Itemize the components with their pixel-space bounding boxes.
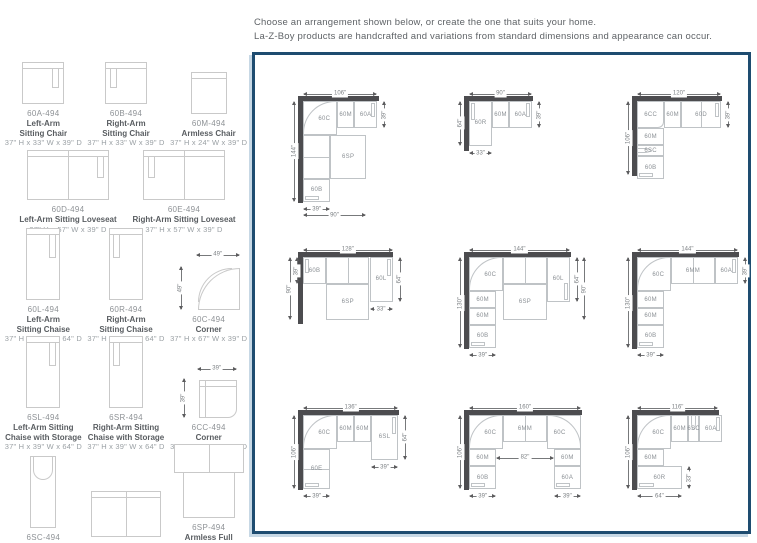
dimension-arrow: 39" [371, 464, 398, 471]
loveseat-arm-l-icon [143, 150, 225, 200]
catalog-item-60A-494: 60A-494Left-ArmSitting Chair37" H x 33" … [2, 58, 85, 148]
piece-label: 60M [555, 450, 580, 465]
dimension-label: 39" [742, 264, 749, 277]
dimension-arrow: 33" [686, 466, 693, 489]
catalog-item-6MM-494: 6MM-494Armless Loveseat37" H x 62" W x 3… [85, 459, 168, 543]
dimension-label: 90" [581, 282, 588, 295]
dimension-arrow: 64" [457, 101, 464, 146]
piece-60C: 60C [469, 257, 503, 291]
dimension-arrow: 39" [725, 101, 732, 128]
arrow-start-icon [458, 101, 462, 105]
piece-60A: 60A [715, 257, 738, 284]
piece-name: Sitting Chair [102, 129, 150, 139]
piece-label: 60M [638, 292, 663, 307]
piece-60M: 60M [637, 128, 664, 145]
chaise-arm-l-icon [109, 336, 143, 408]
arrow-end-icon [743, 280, 747, 284]
dimension-arrow: 144" [469, 247, 570, 254]
piece-icon-area [105, 58, 147, 104]
dimension-arrow: 39" [554, 493, 581, 500]
dimension-label: 39" [310, 493, 323, 500]
arrow-start-icon [371, 465, 375, 469]
dimension-arrow: 90" [287, 257, 294, 320]
arrow-end-icon [182, 414, 186, 418]
piece-name: Right-Arm Sitting [93, 423, 159, 433]
piece-label: 60B [470, 326, 495, 347]
dimension-label: 144" [679, 247, 695, 254]
piece-name: Sitting Chair [20, 129, 68, 139]
piece-name: Armless Full [185, 533, 233, 543]
arrow-start-icon [469, 406, 473, 410]
arrow-end-icon [362, 213, 366, 217]
arrow-start-icon [687, 466, 691, 470]
piece-label: 60B [304, 258, 325, 283]
arrow-start-icon [398, 257, 402, 261]
piece-6CC: 6CC [637, 101, 664, 128]
catalog-item-60B-494: 60B-494Right-ArmSitting Chair37" H x 33"… [85, 58, 168, 148]
piece-60M: 60M [637, 291, 664, 308]
piece-label: 60C [470, 258, 502, 290]
arrow-end-icon [660, 353, 664, 357]
piece-icon-area: 49"49" [178, 234, 240, 310]
catalog-item-60C-494: 49"49"60C-494Corner37" H x 67" W x 39" D [167, 234, 250, 344]
intro-text: Choose an arrangement shown below, or cr… [254, 16, 712, 43]
dimension-arrow: 136" [303, 405, 398, 412]
loveseat-armless-icon [91, 491, 161, 537]
dimension-arrow: 64" [574, 257, 581, 302]
arrow-start-icon [382, 101, 386, 105]
arrow-end-icon [577, 406, 581, 410]
dimension-arrow: 82" [496, 455, 553, 462]
arrow-start-icon [469, 92, 473, 96]
piece-label: 6SC [689, 416, 698, 441]
piece-60L: 60L [547, 257, 570, 302]
arrow-start-icon [637, 248, 641, 252]
piece-label: 6SC [638, 146, 663, 155]
piece-label: 60D [682, 102, 720, 127]
dimension-label: 64" [653, 493, 666, 500]
catalog-item-60L-494: 60L-494Left-ArmSitting Chaise37" H x 33"… [2, 224, 85, 344]
arrow-end-icon [292, 485, 296, 489]
arrow-start-icon [303, 92, 307, 96]
arrow-start-icon [726, 101, 730, 105]
dimension-label: 33" [686, 471, 693, 484]
piece-60M: 60M [554, 449, 581, 466]
arrow-start-icon [637, 353, 641, 357]
dimension-arrow: 39" [469, 493, 496, 500]
arrow-end-icon [233, 367, 237, 371]
chaise-arm-r-icon [26, 336, 60, 408]
arrow-end-icon [382, 124, 386, 128]
arrow-end-icon [458, 485, 462, 489]
arrow-start-icon [303, 213, 307, 217]
piece-label: 60M [638, 129, 663, 144]
arrow-start-icon [303, 207, 307, 211]
arrow-end-icon [389, 307, 393, 311]
dimension-label: 39" [378, 464, 391, 471]
dimension-label: 39" [294, 264, 301, 277]
dimension-label: 120" [671, 91, 687, 98]
piece-icon-area [26, 332, 60, 408]
dimension-arrow: 49" [196, 252, 240, 259]
arrow-end-icon [687, 485, 691, 489]
piece-label: 60M [638, 450, 663, 465]
piece-icon-area [27, 146, 109, 200]
dimension-label: 160" [517, 405, 533, 412]
model-number: 6SR-494 [109, 413, 143, 423]
model-number: 60D-494 [52, 205, 85, 215]
div-v-mark [348, 258, 349, 283]
model-number: 60C-494 [192, 315, 225, 325]
piece-unlabeled [303, 135, 330, 178]
piece-unlabeled [326, 257, 369, 284]
dimension-arrow: 39" [381, 101, 388, 128]
piece-60M: 60M [671, 415, 688, 442]
piece-60C: 60C [303, 415, 337, 449]
corner-arc-icon [198, 268, 240, 310]
catalog-row: 60A-494Left-ArmSitting Chair37" H x 33" … [0, 58, 252, 148]
model-number: 60L-494 [28, 305, 59, 315]
piece-60M: 60M [664, 101, 681, 128]
dimension-label: 144" [511, 247, 527, 254]
dimension-label: 136" [343, 405, 359, 412]
dimension-label: 39" [536, 108, 543, 121]
arrow-end-icon [295, 280, 299, 284]
arrow-end-icon [326, 207, 330, 211]
catalog-item-60E-494: 60E-494Right-Arm Sitting Loveseat37" H x… [126, 146, 242, 234]
piece-60R: 60R [469, 101, 492, 146]
piece-label: 60E [304, 450, 329, 488]
piece-label: 60C [304, 102, 336, 134]
arrow-end-icon [577, 494, 581, 498]
dimension-label: 39" [476, 352, 489, 359]
chaise-arm-r-icon [26, 228, 60, 300]
arrow-end-icon [398, 298, 402, 302]
dimension-label: 130" [625, 294, 632, 310]
arrow-start-icon [575, 257, 579, 261]
dimension-label: 106" [332, 91, 348, 98]
piece-label: 6MM [672, 258, 713, 283]
piece-icon-area [109, 224, 143, 300]
catalog-item-6SL-494: 6SL-494Left-Arm SittingChaise with Stora… [2, 332, 85, 452]
arrow-start-icon [469, 494, 473, 498]
catalog-row: 60D-494Left-Arm Sitting Loveseat37" H x … [0, 146, 252, 234]
sleeper-icon [174, 444, 244, 518]
piece-60C: 60C [637, 415, 671, 449]
dimension-label: 90" [494, 91, 507, 98]
piece-60D: 60D [681, 101, 721, 128]
catalog-item-6SC-494: 6SC-494Storage Console25.5" H x 10" W x … [2, 450, 85, 543]
arrow-start-icon [197, 367, 201, 371]
model-number: 60M-494 [192, 119, 226, 129]
dimension-label: 106" [625, 130, 632, 146]
dimension-arrow: 120" [637, 91, 721, 98]
piece-label: 60M [665, 102, 680, 127]
dimension-arrow: 39" [742, 257, 749, 284]
catalog-sidebar: 60A-494Left-ArmSitting Chair37" H x 33" … [0, 0, 252, 543]
arrow-end-icon [626, 485, 630, 489]
dimension-arrow: 33" [469, 150, 492, 157]
arrow-end-icon [566, 248, 570, 252]
arrow-end-icon [678, 494, 682, 498]
arrow-start-icon [469, 151, 473, 155]
piece-label: 60A [510, 102, 531, 127]
dimension-arrow: 106" [457, 415, 464, 489]
piece-60M: 60M [492, 101, 509, 128]
loveseat-arm-r-icon [27, 150, 109, 200]
arrow-start-icon [626, 257, 630, 261]
dimension-label: 116" [670, 405, 686, 412]
console-icon [30, 456, 56, 528]
piece-60A: 60A [354, 101, 377, 128]
arrow-end-icon [726, 124, 730, 128]
piece-label: 60B [638, 157, 663, 178]
model-number: 60B-494 [110, 109, 142, 119]
piece-label: 60B [470, 467, 495, 488]
dimension-arrow: 106" [303, 91, 377, 98]
arrow-start-icon [458, 415, 462, 419]
model-number: 6SP-494 [192, 523, 225, 533]
dimension-arrow: 49" [178, 266, 185, 310]
dimension-arrow: 106" [625, 101, 632, 175]
dimension-label: 64" [402, 431, 409, 444]
arrow-start-icon [554, 494, 558, 498]
piece-60B: 60B [469, 466, 496, 489]
catalog-item-6CC-494: 39"39"6CC-494Corner37" H x 53" W x 39" D [167, 342, 250, 452]
piece-name: Left-Arm Sitting [13, 423, 73, 433]
piece-label: 60C [304, 416, 336, 448]
piece-60A: 60A [699, 415, 722, 442]
dimension-label: 39" [476, 493, 489, 500]
piece-icon-area [91, 459, 161, 537]
arrow-end-icon [537, 124, 541, 128]
dimension-arrow: 33" [370, 306, 393, 313]
intro-line-2: La-Z-Boy products are handcrafted and va… [254, 30, 712, 44]
dimension-label: 39" [644, 352, 657, 359]
arrow-start-icon [303, 406, 307, 410]
piece-name: Armless Chair [182, 129, 236, 139]
catalog-item-60D-494: 60D-494Left-Arm Sitting Loveseat37" H x … [10, 146, 126, 234]
catalog-row: 60L-494Left-ArmSitting Chaise37" H x 33"… [0, 224, 252, 344]
piece-60B: 60B [469, 325, 496, 348]
model-number: 6CC-494 [192, 423, 226, 433]
arrow-start-icon [182, 378, 186, 382]
arrow-end-icon [326, 494, 330, 498]
catalog-item-60M-494: 60M-494Armless Chair37" H x 24" W x 39" … [167, 68, 250, 148]
model-number: 60R-494 [110, 305, 143, 315]
corner-icon-wrap: 39"39" [181, 366, 237, 418]
arrow-start-icon [292, 415, 296, 419]
div-v-mark [525, 258, 526, 283]
piece-label: 60M [470, 450, 495, 465]
chaise-arm-l-icon [109, 228, 143, 300]
piece-label: 60C [638, 258, 670, 290]
piece-60B: 60B [303, 179, 330, 202]
dimension-arrow: 90" [581, 257, 588, 320]
dimension-label: 64" [457, 117, 464, 130]
arrow-start-icon [626, 415, 630, 419]
piece-6SP: 6SP [326, 284, 369, 320]
piece-60M: 60M [469, 308, 496, 325]
piece-60M: 60M [469, 449, 496, 466]
dimension-label: 39" [210, 366, 223, 373]
dimension-arrow: 39" [197, 366, 237, 373]
catalog-item-6SR-494: 6SR-494Right-Arm SittingChaise with Stor… [85, 332, 168, 452]
catalog-row: 6SL-494Left-Arm SittingChaise with Stora… [0, 332, 252, 452]
piece-icon-area [191, 68, 227, 114]
arrow-end-icon [389, 248, 393, 252]
dimension-label: 130" [457, 294, 464, 310]
piece-label: 60M [470, 292, 495, 307]
dimension-label: 33" [375, 306, 388, 313]
piece-60A: 60A [554, 466, 581, 489]
piece-60M: 60M [337, 101, 354, 128]
arrow-start-icon [743, 257, 747, 261]
piece-label: 60M [638, 309, 663, 324]
dimension-label: 90" [328, 212, 341, 219]
arrow-end-icon [626, 344, 630, 348]
model-number: 6SC-494 [26, 533, 60, 543]
piece-6SP: 6SP [330, 135, 366, 178]
piece-label: 6SL [372, 416, 397, 459]
dimension-arrow: 64" [402, 415, 409, 460]
arrow-start-icon [292, 101, 296, 105]
dimension-label: 49" [178, 281, 185, 294]
arrow-start-icon [196, 253, 200, 257]
piece-60L: 60L [370, 257, 393, 302]
piece-label: 60A [716, 258, 737, 283]
dimension-label: 106" [457, 444, 464, 460]
dimension-label: 64" [574, 273, 581, 286]
arrow-start-icon [403, 415, 407, 419]
model-number: 60E-494 [168, 205, 200, 215]
piece-icon-area [26, 224, 60, 300]
arrow-end-icon [734, 248, 738, 252]
dimension-arrow: 64" [397, 257, 404, 302]
arrow-start-icon [469, 248, 473, 252]
dimension-arrow: 130" [625, 257, 632, 348]
dimension-arrow: 39" [637, 352, 664, 359]
arrow-end-icon [714, 406, 718, 410]
piece-60M: 60M [469, 291, 496, 308]
piece-label: 60R [638, 467, 681, 488]
piece-name: Left-Arm [27, 315, 60, 325]
model-number: 60A-494 [27, 109, 59, 119]
arrow-start-icon [288, 257, 292, 261]
page: 60A-494Left-ArmSitting Chair37" H x 33" … [0, 0, 757, 543]
arrow-start-icon [179, 266, 183, 270]
arrow-start-icon [626, 101, 630, 105]
div-h-mark [304, 157, 329, 158]
dimension-arrow: 39" [469, 352, 496, 359]
dimension-arrow: 90" [303, 212, 366, 219]
dimension-label: 39" [725, 108, 732, 121]
dimension-label: 39" [381, 108, 388, 121]
piece-name: Right-Arm [106, 119, 145, 129]
dimension-label: 49" [211, 252, 224, 259]
dimension-arrow: 130" [457, 257, 464, 348]
catalog-row: 6SC-494Storage Console25.5" H x 10" W x … [0, 440, 252, 543]
piece-label: 6SP [331, 136, 365, 177]
dimension-arrow: 160" [469, 405, 581, 412]
piece-60E: 60E [303, 449, 330, 489]
piece-label: 60C [638, 416, 670, 448]
arrow-end-icon [492, 494, 496, 498]
piece-unlabeled [503, 257, 546, 284]
chair-arm-l-icon [105, 62, 147, 104]
piece-60M: 60M [337, 415, 354, 442]
arrow-end-icon [582, 316, 586, 320]
dimension-arrow: 106" [625, 415, 632, 489]
dimension-label: 106" [291, 444, 298, 460]
arrow-end-icon [717, 92, 721, 96]
piece-6SC: 6SC [688, 415, 699, 442]
catalog-item-6SP-494: 6SP-494Armless FullSleeper Sofa37" H x 6… [167, 440, 250, 543]
piece-60B: 60B [637, 325, 664, 348]
corner-square-icon [199, 380, 237, 418]
piece-icon-area [109, 332, 143, 408]
piece-icon-area [22, 58, 64, 104]
piece-label: 60M [338, 416, 353, 441]
arrow-end-icon [626, 171, 630, 175]
piece-label: 60C [548, 416, 580, 448]
arrow-start-icon [370, 307, 374, 311]
piece-label: 6MM [504, 416, 545, 441]
dimension-label: 90" [287, 282, 294, 295]
piece-label: 60M [355, 416, 370, 441]
arrow-start-icon [637, 494, 641, 498]
dimension-label: 39" [181, 391, 188, 404]
arrow-end-icon [292, 198, 296, 202]
piece-label: 60A [355, 102, 376, 127]
piece-icon-area [174, 440, 244, 518]
dimension-label: 39" [561, 493, 574, 500]
dimension-arrow: 64" [637, 493, 682, 500]
dimension-arrow: 39" [303, 493, 330, 500]
dimension-arrow: 144" [637, 247, 738, 254]
piece-label: 60M [338, 102, 353, 127]
piece-name: Left-Arm [27, 119, 60, 129]
arrow-end-icon [288, 316, 292, 320]
piece-60B: 60B [303, 257, 326, 284]
arrow-end-icon [492, 353, 496, 357]
arrow-start-icon [582, 257, 586, 261]
chair-armless-icon [191, 72, 227, 114]
piece-icon-area [143, 146, 225, 200]
arrow-end-icon [458, 142, 462, 146]
piece-60A: 60A [509, 101, 532, 128]
piece-name: Right-Arm [106, 315, 145, 325]
arrow-end-icon [373, 92, 377, 96]
piece-60C: 60C [637, 257, 671, 291]
piece-6SP: 6SP [503, 284, 546, 320]
dimension-arrow: 39" [536, 101, 543, 128]
piece-6MM: 6MM [503, 415, 546, 442]
dimension-label: 33" [474, 150, 487, 157]
piece-60C: 60C [547, 415, 581, 449]
arrow-end-icon [394, 406, 398, 410]
piece-label: 60B [304, 180, 329, 201]
piece-label: 60L [371, 258, 392, 301]
dimension-arrow: 116" [637, 405, 718, 412]
piece-60B: 60B [637, 156, 664, 179]
arrangements-panel: 60C60M60A6SP60B106"144"39"39"90"60R60M60… [252, 52, 751, 534]
dimension-label: 106" [625, 444, 632, 460]
arrow-start-icon [295, 257, 299, 261]
arrow-end-icon [550, 456, 554, 460]
arrow-end-icon [236, 253, 240, 257]
dimension-label: 144" [291, 143, 298, 159]
